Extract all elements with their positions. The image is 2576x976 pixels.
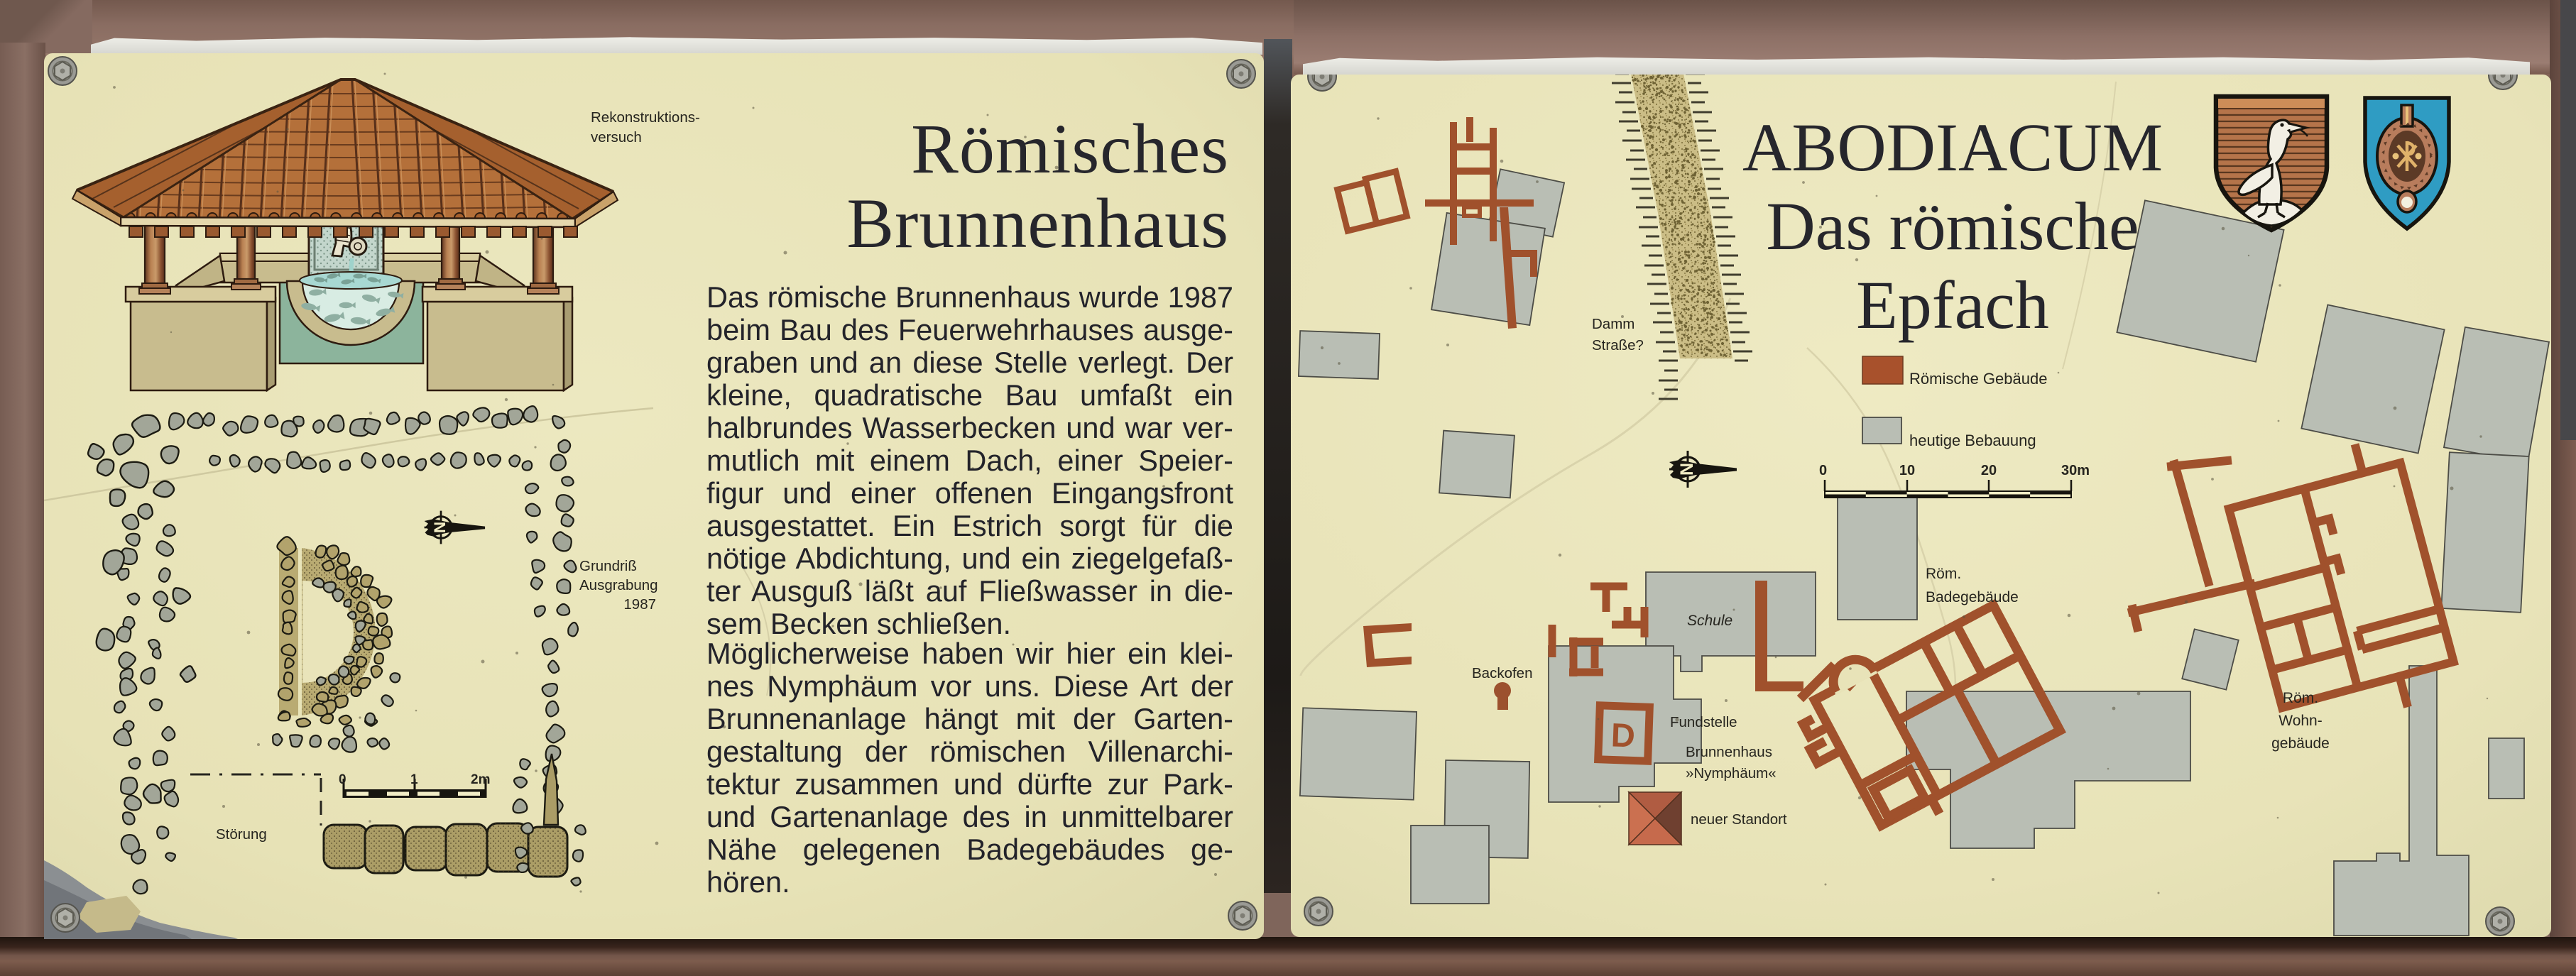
svg-text:Rekonstruktions-: Rekonstruktions- (591, 109, 700, 126)
svg-text:Straße?: Straße? (1592, 337, 1644, 353)
svg-text:20: 20 (1981, 463, 1997, 478)
svg-text:Badegebäude: Badegebäude (1926, 589, 2019, 605)
svg-text:gebäude: gebäude (2271, 735, 2330, 752)
svg-text:0: 0 (339, 772, 346, 787)
svg-text:Schule: Schule (1687, 613, 1732, 629)
svg-text:Damm: Damm (1592, 316, 1634, 332)
svg-text:»Nymphäum«: »Nymphäum« (1686, 765, 1777, 782)
svg-text:Störung: Störung (216, 826, 267, 843)
svg-text:Backofen: Backofen (1472, 665, 1532, 681)
svg-text:10: 10 (1899, 463, 1915, 478)
svg-text:neuer Standort: neuer Standort (1691, 811, 1787, 828)
svg-text:1: 1 (410, 772, 418, 787)
svg-text:2m: 2m (471, 772, 490, 787)
svg-text:Römische Gebäude: Römische Gebäude (1909, 370, 2047, 388)
svg-text:N: N (1676, 463, 1696, 476)
svg-text:Ausgrabung: Ausgrabung (579, 577, 658, 593)
svg-text:Brunnenhaus: Brunnenhaus (1686, 744, 1772, 760)
svg-text:30m: 30m (2061, 463, 2090, 478)
svg-text:Röm.: Röm. (2283, 690, 2318, 706)
svg-text:0: 0 (1819, 463, 1827, 478)
svg-text:heutige Bebauung: heutige Bebauung (1909, 432, 2036, 449)
svg-text:versuch: versuch (591, 129, 642, 146)
svg-text:Röm.: Röm. (1926, 566, 1961, 582)
svg-text:D: D (1610, 715, 1636, 754)
svg-text:N: N (431, 522, 449, 533)
svg-text:1987: 1987 (623, 596, 656, 613)
svg-text:Wohn-: Wohn- (2278, 713, 2322, 729)
svg-text:Grundriß: Grundriß (579, 558, 637, 574)
svg-text:Fundstelle: Fundstelle (1670, 714, 1737, 730)
